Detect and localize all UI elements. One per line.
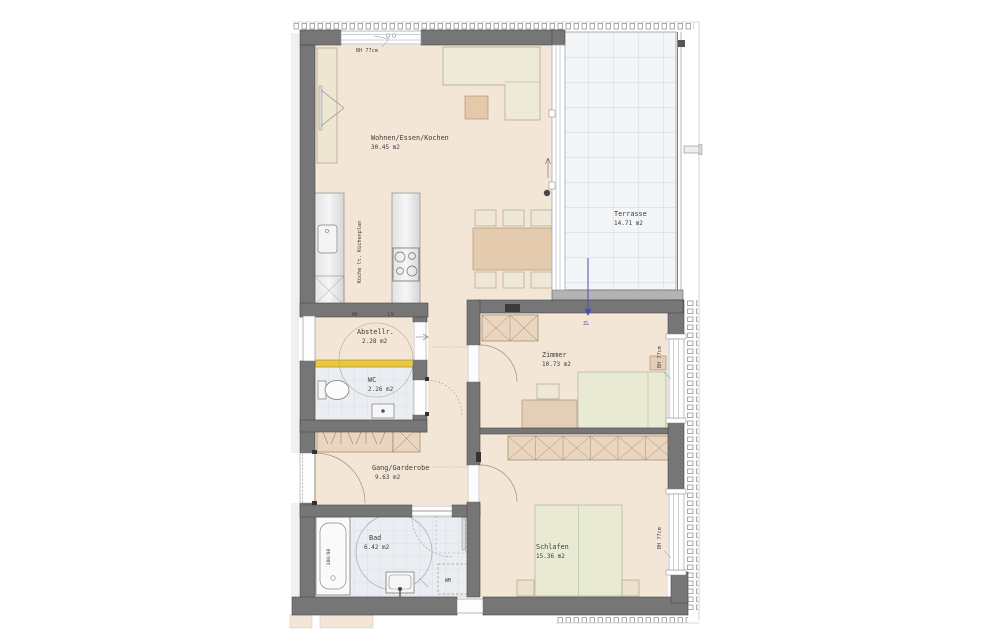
bathtub-size-label: 180/80 [326, 548, 332, 565]
area-label-abstellraum: 2.28 m2 [362, 338, 388, 345]
lv-label: LV [388, 312, 394, 318]
floor-plan-canvas: ZL Wohnen/Essen/Kochen 30.45 m2 Terrasse… [0, 0, 1000, 641]
toilet [325, 381, 349, 400]
entrance-door-opening [300, 453, 315, 503]
room-label-terrasse: Terrasse [614, 210, 647, 218]
right-insulation-band [686, 298, 698, 612]
abstellraum-door-opening [414, 322, 426, 360]
wall-pier [505, 304, 520, 312]
window-schlafen [666, 489, 686, 575]
area-label-terrasse: 14.71 m2 [614, 220, 643, 227]
desk-chair [537, 384, 559, 399]
area-label-gang: 9.63 m2 [375, 474, 401, 481]
area-label-zimmer: 10.73 m2 [542, 361, 571, 368]
room-label-zimmer: Zimmer [542, 351, 567, 359]
wall-niche [303, 316, 315, 361]
window-height-label-zimmer: BH 77cm [657, 346, 663, 368]
window-zimmer [666, 334, 686, 423]
neighbor-floor-patch [290, 615, 312, 628]
hv-label: HV [352, 312, 358, 318]
wc-door-opening [414, 380, 426, 415]
floor-plan-drawing: ZL Wohnen/Essen/Kochen 30.45 m2 Terrasse… [0, 0, 1000, 641]
floor-corridor [428, 303, 467, 432]
column [544, 190, 550, 196]
kitchen-island [392, 193, 420, 305]
area-label-bad: 6.42 m2 [364, 544, 390, 551]
zimmer-door-opening [468, 345, 479, 382]
bed-zimmer [578, 372, 666, 428]
room-label-abstellraum: Abstellr. [357, 328, 394, 336]
desk [522, 400, 577, 428]
area-label-wohnen: 30.45 m2 [371, 144, 400, 151]
window-height-label-schlafen: BH 77cm [657, 527, 663, 549]
towel-radiator [462, 518, 466, 550]
tv [319, 86, 322, 130]
coffee-table [465, 96, 488, 119]
area-label-schlafen: 15.36 m2 [536, 553, 565, 560]
terrace [552, 32, 702, 300]
bottom-wall-opening [457, 599, 483, 613]
room-label-schlafen: Schlafen [536, 543, 569, 551]
top-insulation-band [293, 22, 694, 31]
dining-table [473, 228, 557, 270]
bathtub [316, 517, 350, 595]
washing-machine-label: WM [445, 578, 451, 584]
terrace-parapet [552, 290, 683, 300]
window-height-label-top: BH 77cm [356, 48, 378, 54]
nightstand-left [517, 580, 534, 596]
schlafen-door-opening [468, 465, 479, 502]
highlight-band [315, 360, 413, 367]
room-label-gang: Gang/Garderobe [372, 464, 429, 472]
neighbor-floor-patch [320, 615, 373, 628]
room-label-wohnen: Wohnen/Essen/Kochen [371, 134, 449, 142]
terrace-tiles [563, 32, 676, 290]
supply-air-label: ZL [583, 321, 589, 327]
area-label-wc: 2.26 m2 [368, 386, 394, 393]
nightstand-right [622, 580, 639, 596]
terrace-drain [678, 40, 685, 47]
door-hinge-block [476, 452, 481, 462]
room-label-wc: WC [368, 376, 376, 384]
kitchen-note-label: Küche lt. Küchenplan [357, 221, 363, 283]
bottom-insulation-band [556, 615, 688, 623]
drain-pipe [684, 146, 701, 153]
room-label-bad: Bad [369, 534, 381, 542]
